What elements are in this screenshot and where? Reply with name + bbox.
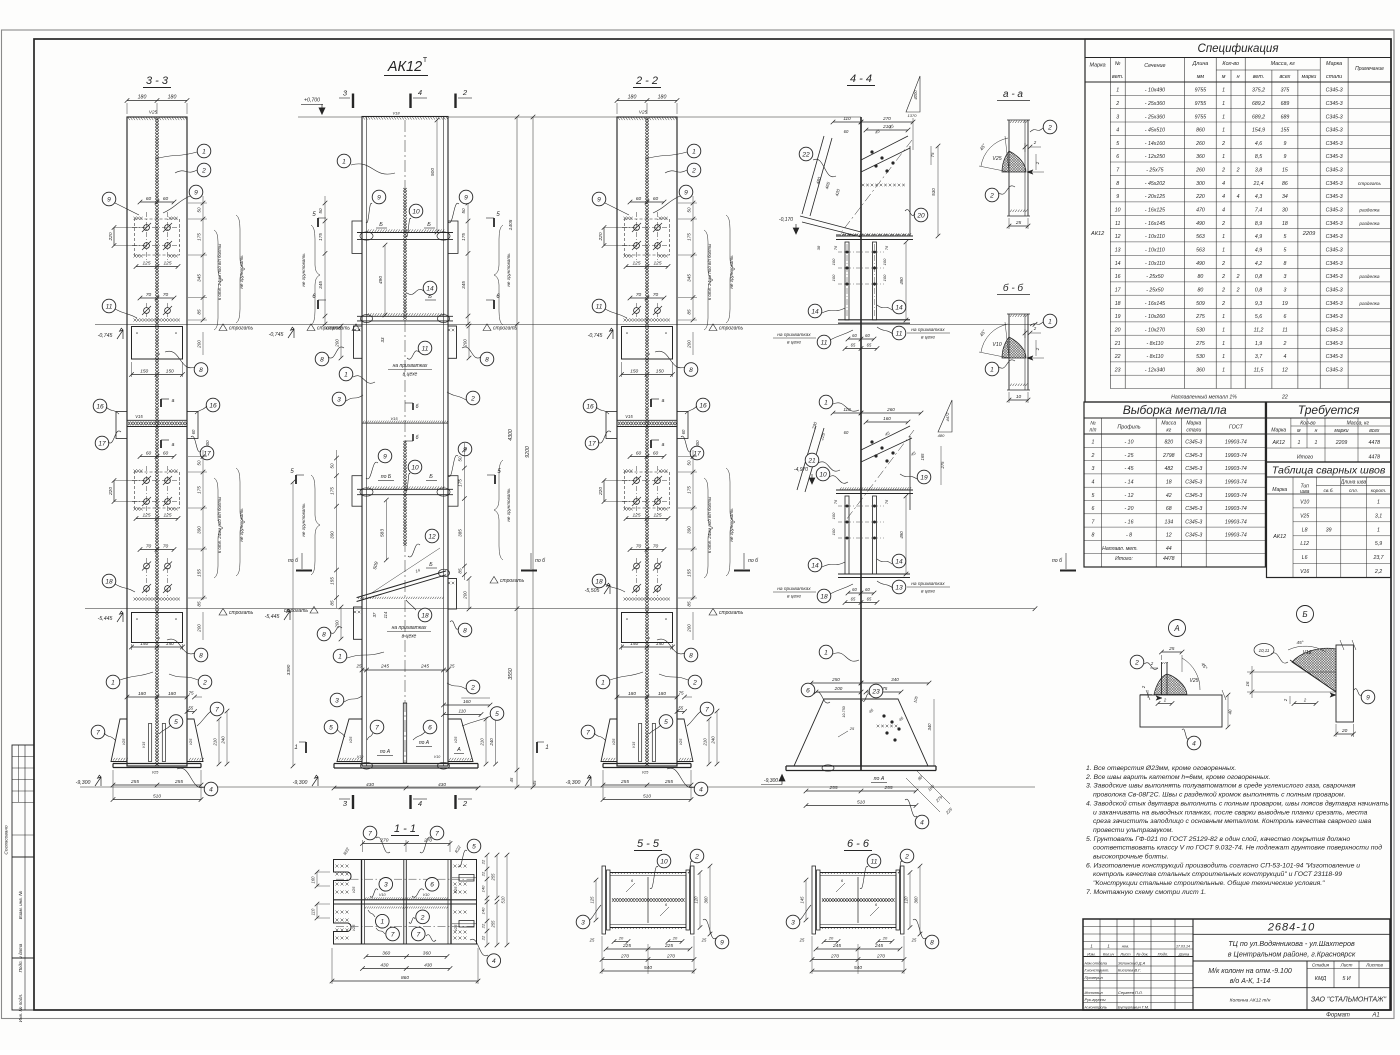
svg-text:5: 5: [174, 719, 178, 726]
svg-text:4478: 4478: [1369, 455, 1381, 461]
svg-text:9,3: 9,3: [1255, 301, 1262, 307]
svg-text:530: 530: [931, 188, 936, 196]
svg-text:V16: V16: [1300, 569, 1309, 575]
svg-text:- 45: - 45: [1125, 466, 1134, 472]
svg-text:6: 6: [806, 687, 810, 694]
svg-text:60: 60: [653, 451, 659, 457]
svg-text:11: 11: [596, 303, 603, 310]
svg-text:Масса: Масса: [1161, 421, 1176, 427]
svg-text:5 И: 5 И: [1342, 976, 1350, 982]
svg-text:12: 12: [1115, 234, 1121, 240]
svg-text:11: 11: [1115, 221, 1120, 227]
svg-text:1: 1: [1222, 88, 1225, 94]
svg-text:33: 33: [380, 337, 385, 342]
svg-text:25: 25: [911, 938, 917, 943]
svg-text:1: 1: [1222, 328, 1225, 334]
svg-text:21,4: 21,4: [1252, 181, 1263, 187]
svg-text:ГОСТ: ГОСТ: [1229, 425, 1244, 431]
svg-text:0,8: 0,8: [1255, 274, 1262, 280]
svg-text:150: 150: [140, 641, 148, 647]
svg-text:Лист: Лист: [1340, 962, 1353, 967]
svg-text:V15: V15: [142, 742, 146, 748]
svg-text:4: 4: [1116, 128, 1119, 134]
svg-text:4: 4: [1091, 480, 1094, 486]
svg-text:345: 345: [687, 274, 692, 282]
svg-text:Бутурлакин Г.М.: Бутурлакин Г.М.: [1118, 1004, 1149, 1009]
svg-text:360: 360: [1196, 154, 1205, 160]
svg-text:175: 175: [687, 233, 692, 241]
svg-text:6: 6: [430, 882, 434, 889]
svg-text:390: 390: [330, 531, 335, 539]
svg-text:385: 385: [457, 529, 462, 537]
svg-text:2,2: 2,2: [1374, 569, 1382, 575]
svg-text:АК12: АК12: [387, 59, 422, 75]
svg-text:1: 1: [1107, 944, 1109, 949]
svg-text:8: 8: [485, 356, 489, 363]
svg-text:18: 18: [1166, 480, 1172, 486]
svg-text:в цехе: в цехе: [787, 595, 801, 600]
svg-text:150: 150: [166, 641, 174, 647]
svg-text:№ док.: № док.: [1136, 952, 1148, 956]
svg-text:20: 20: [672, 936, 678, 941]
svg-text:270: 270: [666, 954, 675, 960]
svg-text:689: 689: [1281, 114, 1290, 120]
svg-text:на прихватках: на прихватках: [392, 625, 427, 631]
svg-text:V10: V10: [423, 893, 431, 897]
svg-text:2: 2: [989, 192, 994, 199]
svg-text:16: 16: [96, 403, 104, 410]
svg-text:а - а: а - а: [1003, 89, 1023, 100]
svg-text:и: и: [175, 331, 177, 335]
svg-text:Изм.: Изм.: [1087, 951, 1096, 956]
svg-text:8: 8: [199, 367, 203, 374]
svg-text:2: 2: [1035, 347, 1040, 351]
svg-text:строгать: строгать: [500, 578, 525, 584]
svg-text:220: 220: [1195, 194, 1205, 200]
svg-text:Наплавл. мет.: Наплавл. мет.: [1102, 546, 1138, 552]
svg-text:689: 689: [1281, 101, 1290, 107]
svg-text:4: 4: [920, 819, 924, 826]
svg-text:4478: 4478: [1369, 440, 1381, 446]
svg-text:С345-3: С345-3: [1185, 506, 1202, 512]
svg-text:соответствовать классу V по ГО: соответствовать классу V по ГОСТ 9.032-7…: [1093, 844, 1382, 852]
svg-text:125: 125: [163, 513, 171, 519]
svg-text:200: 200: [834, 686, 843, 691]
svg-text:Выборка металла: Выборка металла: [1123, 403, 1227, 417]
svg-text:по б: по б: [1052, 558, 1063, 564]
svg-text:500: 500: [430, 168, 436, 176]
svg-text:225: 225: [622, 943, 631, 949]
svg-text:125: 125: [653, 261, 661, 267]
svg-text:АК12: АК12: [1090, 231, 1105, 237]
svg-text:3: 3: [335, 697, 339, 704]
svg-text:60: 60: [852, 333, 857, 338]
svg-text:С345-3: С345-3: [1326, 88, 1343, 94]
svg-text:2: 2: [1035, 161, 1040, 165]
svg-text:10: 10: [412, 208, 420, 215]
svg-text:Профиль: Профиль: [1117, 425, 1140, 431]
svg-text:21: 21: [1114, 341, 1121, 347]
svg-text:- 10х110: - 10х110: [1145, 234, 1165, 240]
svg-text:б - б: б - б: [1003, 282, 1024, 294]
svg-text:3,8: 3,8: [1255, 168, 1262, 174]
svg-text:Длина: Длина: [1191, 61, 1208, 67]
svg-text:б: б: [416, 404, 419, 410]
svg-text:9: 9: [597, 196, 601, 203]
svg-text:5: 5: [664, 719, 668, 726]
svg-text:180: 180: [658, 691, 666, 697]
svg-text:85: 85: [197, 601, 202, 607]
svg-text:С345-3: С345-3: [1185, 466, 1202, 472]
svg-text:75: 75: [678, 691, 684, 696]
svg-text:13: 13: [895, 584, 903, 591]
svg-text:2: 2: [201, 167, 206, 174]
svg-text:в цехе: в цехе: [402, 634, 417, 640]
svg-text:210: 210: [480, 738, 485, 747]
svg-text:490: 490: [899, 277, 904, 285]
svg-text:Б: Б: [379, 222, 383, 228]
svg-text:23: 23: [1114, 368, 1121, 374]
svg-text:50: 50: [687, 460, 692, 466]
svg-text:16: 16: [209, 402, 217, 409]
svg-text:а: а: [662, 442, 665, 448]
svg-text:4: 4: [1192, 740, 1196, 747]
svg-text:на прихватках: на прихватках: [911, 582, 945, 587]
svg-text:V25: V25: [454, 736, 458, 744]
svg-text:360: 360: [914, 896, 919, 904]
svg-text:10: 10: [1115, 208, 1121, 214]
svg-text:85: 85: [687, 601, 692, 607]
svg-text:10: 10: [1016, 394, 1022, 400]
svg-text:V25: V25: [642, 771, 650, 775]
svg-text:V25: V25: [349, 736, 353, 744]
svg-text:строгать: строгать: [326, 326, 351, 332]
svg-text:270: 270: [882, 116, 891, 121]
svg-text:50: 50: [687, 207, 692, 213]
svg-text:3 - 3: 3 - 3: [146, 75, 169, 87]
svg-text:60: 60: [163, 196, 169, 202]
svg-text:V15: V15: [632, 742, 636, 748]
svg-text:Инв. № подл.: Инв. № подл.: [18, 994, 23, 1023]
svg-text:68: 68: [1166, 506, 1172, 512]
svg-text:9: 9: [1116, 194, 1119, 200]
svg-text:м: м: [1297, 428, 1301, 434]
svg-text:Листов: Листов: [1365, 962, 1383, 967]
svg-text:200: 200: [197, 624, 202, 633]
svg-text:2: 2: [904, 853, 909, 860]
svg-text:20: 20: [828, 936, 834, 941]
svg-text:в цехе: в цехе: [787, 341, 801, 346]
svg-text:1: 1: [344, 371, 348, 378]
svg-text:V25: V25: [1190, 678, 1199, 684]
svg-text:по Б: по Б: [381, 474, 392, 480]
svg-text:4478: 4478: [1163, 556, 1175, 562]
svg-text:2798: 2798: [1162, 453, 1175, 459]
svg-text:в Центральном районе, г.Красно: в Центральном районе, г.Красноярск: [1228, 950, 1356, 959]
svg-text:Г.конструкт.: Г.конструкт.: [1085, 968, 1110, 973]
svg-text:Масса, кг: Масса, кг: [1347, 421, 1370, 427]
svg-text:Б: Б: [429, 474, 433, 480]
svg-text:140: 140: [481, 907, 486, 914]
svg-text:245: 245: [874, 943, 883, 949]
svg-text:10: 10: [411, 464, 419, 471]
svg-text:1: 1: [824, 399, 828, 406]
svg-text:245: 245: [832, 943, 841, 949]
svg-text:175: 175: [330, 487, 335, 495]
svg-text:7: 7: [391, 931, 395, 938]
svg-text:3. Заводские швы выполнять пол: 3. Заводские швы выполнять полуавтоматом…: [1086, 782, 1356, 790]
svg-text:270: 270: [876, 954, 885, 960]
svg-text:5. Грунтовать ГФ-021 по ГОСТ 2: 5. Грунтовать ГФ-021 по ГОСТ 25129-82 в …: [1086, 835, 1350, 843]
svg-text:1: 1: [1222, 101, 1225, 107]
svg-text:200: 200: [335, 339, 340, 348]
svg-text:7: 7: [215, 706, 219, 713]
svg-text:9: 9: [377, 194, 381, 201]
svg-text:С345-3: С345-3: [1326, 141, 1343, 147]
svg-text:А: А: [456, 747, 461, 753]
svg-text:2: 2: [1047, 124, 1052, 131]
svg-text:19: 19: [920, 474, 928, 481]
svg-text:п/п: п/п: [1089, 428, 1096, 434]
svg-text:5: 5: [1283, 234, 1286, 240]
svg-text:ЗАО "СТАЛЬМОНТАЖ": ЗАО "СТАЛЬМОНТАЖ": [1311, 997, 1387, 1004]
svg-text:480: 480: [938, 433, 945, 438]
svg-text:200: 200: [463, 591, 468, 600]
svg-text:255: 255: [620, 779, 629, 785]
svg-text:А1: А1: [1371, 1013, 1379, 1019]
svg-text:360: 360: [382, 951, 390, 957]
svg-text:65: 65: [851, 343, 856, 348]
svg-text:С345-3: С345-3: [1326, 154, 1343, 160]
svg-text:50: 50: [197, 460, 202, 466]
svg-text:3: 3: [1283, 288, 1286, 294]
svg-text:19903-74: 19903-74: [1225, 506, 1247, 512]
svg-text:275: 275: [940, 461, 945, 470]
svg-text:5: 5: [472, 843, 476, 850]
svg-text:14: 14: [426, 285, 434, 292]
svg-text:L6: L6: [1302, 555, 1308, 561]
svg-text:по б: по б: [535, 558, 546, 564]
svg-text:9755: 9755: [1195, 101, 1207, 107]
svg-text:5: 5: [495, 711, 499, 718]
svg-text:4: 4: [699, 786, 703, 793]
svg-text:2: 2: [420, 914, 425, 921]
svg-text:275: 275: [1195, 314, 1205, 320]
svg-text:18: 18: [595, 578, 603, 585]
svg-text:1: 1: [1222, 234, 1225, 240]
svg-text:и: и: [158, 636, 160, 640]
svg-text:Кол-во: Кол-во: [1300, 421, 1316, 427]
svg-text:86: 86: [1282, 181, 1288, 187]
svg-text:1: 1: [1222, 114, 1225, 120]
svg-text:V25: V25: [352, 924, 356, 932]
svg-text:360: 360: [423, 951, 431, 957]
svg-text:70: 70: [653, 292, 659, 298]
svg-text:14: 14: [1115, 261, 1121, 267]
svg-text:5: 5: [1091, 493, 1094, 499]
svg-text:по А: по А: [380, 749, 391, 755]
svg-text:в/о А-К, 1-14: в/о А-К, 1-14: [1230, 978, 1271, 985]
svg-text:17: 17: [588, 440, 596, 447]
svg-text:разделка: разделка: [1358, 274, 1380, 280]
svg-text:- 25х360: - 25х360: [1145, 114, 1165, 120]
svg-text:6 - 6: 6 - 6: [847, 838, 870, 850]
svg-text:3: 3: [1283, 274, 1286, 280]
svg-text:- 10х490: - 10х490: [1145, 88, 1165, 94]
svg-text:и: и: [175, 617, 177, 621]
svg-text:50: 50: [457, 456, 462, 462]
svg-text:19903-74: 19903-74: [1225, 440, 1247, 446]
svg-text:в цехе: в цехе: [921, 336, 935, 341]
svg-text:Сергеев П.Л.: Сергеев П.Л.: [1118, 990, 1143, 995]
svg-text:16: 16: [1115, 274, 1121, 280]
svg-text:17.03.14: 17.03.14: [1176, 945, 1190, 949]
svg-text:8: 8: [199, 652, 203, 659]
svg-text:4300: 4300: [508, 429, 514, 441]
svg-text:1: 1: [692, 148, 696, 155]
svg-text:25: 25: [701, 938, 707, 943]
svg-text:39: 39: [1326, 527, 1332, 533]
svg-text:12: 12: [1166, 533, 1172, 539]
svg-text:Дата: Дата: [1178, 951, 1190, 956]
svg-text:210: 210: [703, 738, 708, 747]
svg-text:22: 22: [481, 871, 486, 877]
svg-text:Проверил: Проверил: [1085, 975, 1104, 980]
svg-text:-5,505: -5,505: [585, 588, 600, 594]
svg-text:125: 125: [590, 896, 595, 904]
svg-text:255: 255: [664, 779, 673, 785]
svg-text:V25: V25: [149, 110, 158, 115]
svg-text:390: 390: [197, 526, 202, 534]
svg-text:120: 120: [904, 896, 909, 904]
svg-text:25: 25: [1168, 646, 1175, 652]
svg-text:7: 7: [705, 706, 709, 713]
svg-text:55: 55: [188, 706, 193, 711]
svg-text:Рук.группы: Рук.группы: [1085, 997, 1106, 1002]
svg-text:14: 14: [811, 562, 819, 569]
svg-text:С345-3: С345-3: [1185, 440, 1202, 446]
svg-text:5 - 5: 5 - 5: [637, 838, 660, 850]
svg-text:110: 110: [843, 407, 851, 412]
svg-text:2209: 2209: [1302, 231, 1315, 237]
svg-text:Лист: Лист: [1119, 951, 1131, 956]
svg-text:нов.: нов.: [1122, 944, 1130, 949]
svg-text:- 25х360: - 25х360: [1145, 101, 1165, 107]
svg-text:- 25х75: - 25х75: [1146, 168, 1163, 174]
svg-text:180: 180: [138, 691, 146, 697]
svg-text:2: 2: [462, 799, 468, 808]
svg-text:23: 23: [871, 688, 880, 695]
svg-text:1: 1: [1048, 318, 1052, 325]
svg-text:2: 2: [1221, 261, 1225, 267]
svg-text:Нач.отдела: Нач.отдела: [1085, 960, 1108, 965]
svg-text:строгать: строгать: [493, 326, 518, 332]
svg-text:11: 11: [106, 303, 113, 310]
svg-text:L12: L12: [1300, 541, 1309, 547]
svg-text:19: 19: [1282, 301, 1288, 307]
svg-text:5: 5: [329, 724, 333, 731]
svg-text:345: 345: [197, 274, 202, 282]
svg-text:245: 245: [420, 664, 429, 670]
svg-text:689,2: 689,2: [1252, 101, 1265, 107]
svg-text:240: 240: [489, 738, 494, 747]
svg-text:V25: V25: [454, 886, 458, 894]
svg-text:2: 2: [694, 853, 699, 860]
svg-text:7: 7: [435, 830, 439, 837]
svg-text:25: 25: [849, 726, 855, 731]
svg-text:12: 12: [1282, 368, 1288, 374]
svg-text:6: 6: [428, 724, 432, 731]
svg-text:150: 150: [630, 641, 638, 647]
svg-text:4 - 4: 4 - 4: [850, 73, 872, 85]
svg-text:1: 1: [1377, 500, 1380, 506]
svg-text:530: 530: [1196, 354, 1205, 360]
svg-text:разделка: разделка: [1358, 301, 1380, 307]
svg-text:Колонна АК12 т/н: Колонна АК12 т/н: [1230, 998, 1271, 1004]
svg-text:С345-3: С345-3: [1326, 301, 1343, 307]
svg-text:С345-3: С345-3: [1326, 221, 1343, 227]
svg-text:и: и: [626, 331, 628, 335]
svg-text:155: 155: [330, 577, 335, 585]
svg-text:175: 175: [197, 233, 202, 241]
svg-text:530: 530: [1196, 328, 1205, 334]
svg-text:9755: 9755: [1195, 88, 1207, 94]
svg-text:60: 60: [865, 333, 870, 338]
svg-text:V25: V25: [639, 110, 648, 115]
svg-text:11: 11: [422, 345, 429, 352]
svg-text:255: 255: [130, 779, 139, 785]
svg-text:2: 2: [1221, 168, 1225, 174]
svg-text:V16: V16: [1303, 650, 1312, 656]
svg-text:19: 19: [1115, 314, 1121, 320]
svg-text:70: 70: [653, 544, 659, 550]
svg-text:V15: V15: [390, 416, 398, 421]
svg-text:и: и: [136, 617, 138, 621]
svg-text:180: 180: [138, 95, 147, 101]
svg-text:7. Монтажную схему смотри лист: 7. Монтажную схему смотри лист 1.: [1086, 889, 1206, 896]
svg-text:20: 20: [916, 212, 925, 219]
svg-text:АК12: АК12: [1272, 440, 1285, 446]
svg-text:Подп.: Подп.: [1158, 951, 1169, 956]
svg-text:Согласовано: Согласовано: [4, 825, 10, 855]
svg-text:С345-3: С345-3: [1185, 519, 1202, 525]
svg-text:-9,300: -9,300: [764, 778, 778, 784]
svg-text:стали: стали: [1326, 74, 1342, 80]
svg-text:490: 490: [1196, 261, 1205, 267]
svg-text:2: 2: [1221, 274, 1225, 280]
svg-text:по б: по б: [288, 558, 299, 564]
svg-text:1: 1: [1222, 341, 1225, 347]
svg-text:60: 60: [163, 451, 169, 457]
svg-text:2 - 2: 2 - 2: [635, 75, 658, 87]
svg-text:строгать: строгать: [229, 326, 254, 332]
svg-text:25: 25: [589, 938, 595, 943]
svg-text:7,4: 7,4: [1255, 208, 1262, 214]
svg-text:22: 22: [801, 151, 810, 158]
svg-text:4,9: 4,9: [1255, 234, 1262, 240]
svg-text:V10: V10: [379, 893, 387, 897]
svg-text:и заканчивать на выводных план: и заканчивать на выводных планках, после…: [1093, 808, 1368, 816]
svg-text:19903-74: 19903-74: [1225, 466, 1247, 472]
svg-text:11,5: 11,5: [1254, 368, 1264, 374]
svg-text:482: 482: [1164, 466, 1173, 472]
svg-text:проволока Св-08Г2С. Швы с разд: проволока Св-08Г2С. Швы с разделкой кром…: [1093, 791, 1346, 799]
svg-text:13: 13: [1115, 248, 1121, 254]
svg-text:11: 11: [896, 330, 903, 337]
svg-text:А: А: [1173, 624, 1179, 633]
svg-text:100: 100: [831, 258, 836, 265]
svg-text:25: 25: [799, 938, 805, 943]
